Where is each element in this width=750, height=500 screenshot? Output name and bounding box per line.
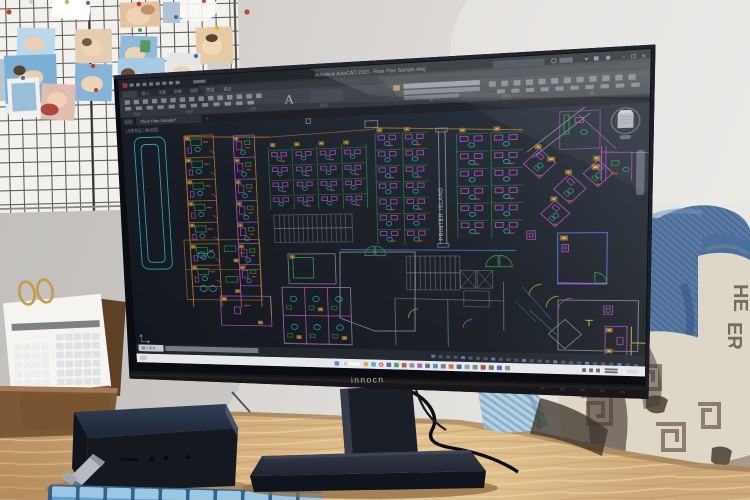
svg-text:innocn: innocn [351,374,385,385]
svg-text:HE: HE [729,284,750,312]
